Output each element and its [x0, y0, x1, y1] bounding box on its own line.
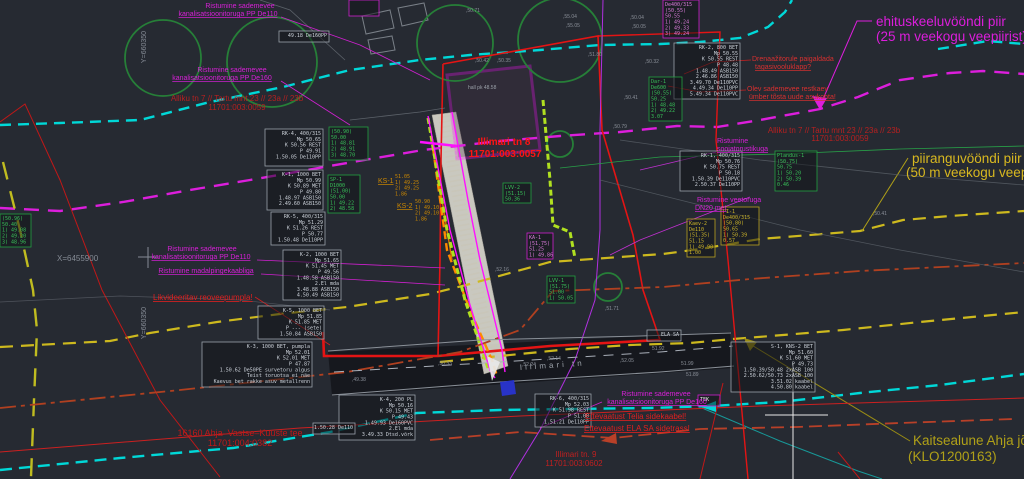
leader-ristumine-110a: [281, 17, 430, 80]
crossing-label: kanalisatsioonitoruga PP De160: [172, 75, 272, 82]
crossing-label: soojatorustikuga: [717, 146, 768, 153]
callout-rk6-line: 1.51.21 De110PP: [544, 419, 589, 425]
grid-label: X=6455900: [57, 254, 99, 263]
callout-rk4-line: 1.50.05 De110PP: [276, 154, 321, 160]
crossing-label: kanalisatsioonitoruga PP De160: [607, 399, 707, 406]
callout-k4-line: 3.49.33 Dtsd.võrk: [362, 432, 413, 438]
spot-elevation: 51.89: [686, 372, 699, 378]
callout-green-sp1-line: 2) 48.58: [330, 206, 354, 212]
callout-de160pp-line: 49.18 De160PP: [288, 33, 327, 39]
spot-elevation: ,50.79: [613, 124, 627, 130]
parcel-label-main: Illimari tn 8: [478, 137, 531, 148]
tree-circle: [518, 0, 602, 82]
spot-elevation: ,50.41: [873, 211, 887, 217]
crossing-label: DN20 met: [695, 205, 727, 212]
warning-label: Olev sademevee restkaev: [747, 86, 828, 93]
ks-label: KS-1: [378, 178, 394, 185]
grid-label: Y=660350: [141, 31, 148, 63]
crossing-label: Ristumine sademevee: [197, 67, 266, 74]
warning-label: ümber tõsta uude asukohta!: [749, 94, 836, 101]
gray-contour: [600, 180, 1024, 272]
crossing-label: Ristumine: [717, 138, 748, 145]
callout-rk5-line: 1.50.48 De110PP: [278, 237, 323, 243]
parcel-label-main: 11701:003:0057: [469, 149, 542, 160]
parcel-label: 16160 Ahja–Vastse–Kuuste tee: [178, 428, 303, 438]
warning-label: tagasivooluklapp?: [755, 64, 811, 71]
callout-green-plandus-line: 0.46: [777, 182, 789, 188]
spot-elevation: ,50.05: [632, 24, 646, 30]
tree-circle: [417, 5, 493, 81]
callout-s1-line: 4.50.80 kaabel: [771, 385, 813, 391]
callout-green-left-line: 3) 48.96: [2, 239, 26, 245]
spot-elevation: ,55.04: [563, 14, 577, 20]
parcel-label: Alliku tn 7 // Tartu mnt 23 // 23a // 23…: [171, 94, 304, 103]
spot-elevation: ,50.35: [497, 58, 511, 64]
callout-magenta-de400-line: 3) 49.24: [665, 31, 689, 37]
crossing-label: Ristumine sademevee: [205, 3, 274, 10]
crossing-label: Ristumine sademevee: [167, 246, 236, 253]
cad-canvas: 49.18 De160PPRK-4, 400/315Mp 50.65K 50.5…: [0, 0, 1024, 479]
ks1-values-line: 1.86: [395, 192, 407, 198]
tree-circle: [594, 273, 622, 301]
teal-line: [702, 408, 882, 479]
warning-label: Ettevaatust Telia sidekaabel!: [585, 412, 686, 421]
zone-label-50m: (50 m veekogu veepiirist): [906, 165, 1024, 180]
parcel-label: Illimari tn. 9: [556, 450, 597, 459]
parcel-label: 11701:003:0602: [545, 459, 603, 468]
warning-label: Drenaažitorule paigaldada: [752, 56, 834, 63]
spot-elevation: ,52.24: [522, 362, 536, 368]
note-label: hall pk 48.58: [468, 85, 497, 91]
spot-elevation: ,50.33: [438, 361, 452, 367]
zone-label-50m: piiranguvööndi piir: [912, 151, 1022, 166]
warning-label: Likvideeritav reoveepumpla!: [153, 293, 253, 302]
red-line-br2: [838, 452, 860, 479]
callout-green-lvv2-line: 50.36: [505, 197, 520, 203]
crossing-label: Ristumine madalpingekaabliga: [158, 268, 253, 275]
protected-area-label: (KLO1200163): [908, 449, 997, 464]
callout-small-line: 1.50.28 De110: [314, 425, 353, 431]
parcel-label: 11701:004:0382: [208, 438, 272, 448]
zone-label-25m: (25 m veekogu veepiirist): [876, 29, 1024, 44]
spot-elevation: ,55.05: [566, 23, 580, 29]
spot-elevation: ,50.42: [475, 58, 489, 64]
spot-elevation: ,50.04: [630, 15, 644, 21]
blue-marker: [500, 380, 516, 396]
grid-label: Y=660350: [141, 307, 148, 339]
callout-rk2-line: 5.49.34 De110PVC: [690, 92, 738, 98]
callout-magenta-empty-frame: [349, 0, 379, 16]
spot-elevation: ,51.71: [605, 306, 619, 312]
callout-rk1-line: 2.50.37 De110PP: [695, 182, 740, 188]
spot-elevation: ,50.41: [624, 95, 638, 101]
parcel-label: 11701:003:0059: [811, 134, 869, 143]
spot-elevation: 51.92: [652, 346, 665, 352]
crossing-label: kanalisatsioonitoruga PP De110: [179, 11, 278, 18]
warning-label: Ettevaatust ELA SA sidetrass!: [584, 424, 690, 433]
spot-elevation: ,50.71: [466, 8, 480, 14]
parcel-label: 11701:003:0059: [208, 103, 266, 112]
zone-label-25m: ehituskeeluvööndi piir: [876, 14, 1006, 29]
callout-k5-line: 1.50.84 ASB150: [280, 331, 322, 337]
spot-elevation: 51.99: [681, 361, 694, 367]
spot-elevation: ,49.38: [352, 377, 366, 383]
spot-elevation: ,52.05: [620, 358, 634, 364]
spot-elevation: ,51.80: [588, 52, 602, 58]
arrow-brick: [601, 433, 617, 444]
tree-circle: [125, 20, 201, 96]
callout-k2-line: 4.50.49 ASB150: [297, 293, 339, 299]
callout-magenta-ka1-line: 1) 49.86: [529, 253, 553, 259]
crossing-label: kanalisatsioonitoruga PP De110: [152, 254, 251, 261]
callout-green-dar1-line: 3.07: [651, 114, 663, 120]
callout-green-lvv1-line: 1) 50.05: [549, 296, 573, 302]
crossing-label: Ristumine veetoruga: [697, 197, 761, 204]
ks-label: KS-2: [397, 203, 413, 210]
callout-yellow-kaev2-line: 1.00: [689, 250, 701, 256]
callout-green-line: 3) 48.70: [331, 152, 355, 158]
callout-yellow-pi1-line: 0.57: [723, 238, 735, 244]
cad-viewport[interactable]: 49.18 De160PPRK-4, 400/315Mp 50.65K 50.5…: [0, 0, 1024, 479]
gray-line: [350, 108, 445, 120]
callout-k1-line: 2.49.60 ASB150: [279, 201, 321, 207]
spot-elevation: ,50.32: [645, 59, 659, 65]
spot-elevation: ,52.14: [547, 356, 561, 362]
spot-elevation: ,52.16: [495, 267, 509, 273]
callout-k3-line: Kaevus bet rakke asuv metallrenn: [214, 379, 310, 385]
crossing-label: Ristumine sademevee: [621, 391, 690, 398]
protected-area-label: Kaitsealune Ahja jõgi: [913, 433, 1024, 448]
callout-ela-sa-line: ELA SA: [661, 332, 679, 338]
ks2-values-line: 1.86: [415, 217, 427, 223]
